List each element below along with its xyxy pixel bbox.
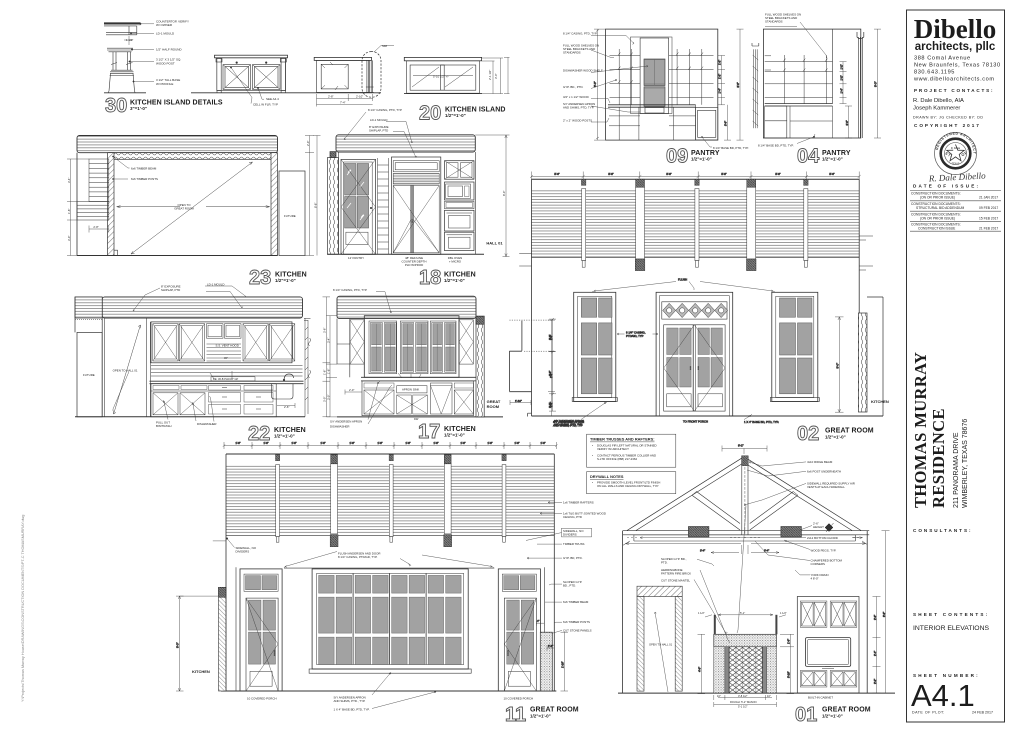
svg-text:TIMBER TRUSSES AND RAFTERS:: TIMBER TRUSSES AND RAFTERS: xyxy=(590,437,654,442)
svg-text:8 1/4" BASE BD, PTD, TYP.: 8 1/4" BASE BD, PTD, TYP. xyxy=(758,144,794,148)
svg-text:DIVIDERS: DIVIDERS xyxy=(236,550,250,554)
svg-text:2'-8": 2'-8" xyxy=(328,95,334,99)
svg-text:23: 23 xyxy=(249,267,271,289)
svg-text:8'-0": 8'-0" xyxy=(502,191,506,196)
svg-text:STRUCTURAL BID ADDENDUM: STRUCTURAL BID ADDENDUM xyxy=(916,206,964,210)
svg-text:REF: REF xyxy=(412,218,414,223)
svg-text:architects, pllc: architects, pllc xyxy=(915,41,996,53)
svg-text:DRYWALL NOTES: DRYWALL NOTES xyxy=(590,474,624,479)
svg-text:8 1/4" CASING, PTD/GD, TYP.: 8 1/4" CASING, PTD/GD, TYP. xyxy=(338,555,378,559)
svg-text:2'-0": 2'-0" xyxy=(349,388,354,392)
svg-text:1'-0": 1'-0" xyxy=(787,639,791,644)
svg-text:10 COVERED PORCH: 10 COVERED PORCH xyxy=(247,697,277,701)
svg-text:1'-8": 1'-8" xyxy=(292,442,297,445)
svg-text:1'-2": 1'-2" xyxy=(718,74,722,79)
svg-text:21 JAN 2017: 21 JAN 2017 xyxy=(979,196,998,200)
svg-text:PATTERN FIRE BRICK: PATTERN FIRE BRICK xyxy=(661,571,691,575)
svg-text:W/ OWNER: W/ OWNER xyxy=(156,23,173,27)
svg-text:3'-4": 3'-4" xyxy=(700,549,705,553)
svg-text:S.S. VENT HOOD: S.S. VENT HOOD xyxy=(216,344,239,348)
svg-text:CORNERS: CORNERS xyxy=(811,562,826,566)
svg-text:3'-0": 3'-0" xyxy=(326,395,330,400)
svg-text:8'-0": 8'-0" xyxy=(874,81,878,87)
svg-text:OPEN TO HALL 01: OPEN TO HALL 01 xyxy=(649,642,673,646)
svg-text:TIMBER TRUSS: TIMBER TRUSS xyxy=(563,542,585,546)
svg-text:5'-6": 5'-6" xyxy=(829,172,834,176)
svg-text:3'-8 1/2": 3'-8 1/2" xyxy=(738,694,748,698)
svg-text:3'-0": 3'-0" xyxy=(494,73,498,79)
svg-text:CELL W FLR, TYP: CELL W FLR, TYP xyxy=(253,103,278,107)
svg-text:8 1/4" CASING, PTD, TYP: 8 1/4" CASING, PTD, TYP xyxy=(368,108,402,112)
svg-text:3'-0": 3'-0" xyxy=(845,120,849,125)
svg-text:LD-1 MOULD: LD-1 MOULD xyxy=(370,118,388,122)
svg-text:DISHWASHER: DISHWASHER xyxy=(197,422,217,426)
svg-text:1 X 4" BASE BD, PTD, TYP.: 1 X 4" BASE BD, PTD, TYP. xyxy=(744,420,779,424)
svg-text:1'-8": 1'-8" xyxy=(378,442,383,445)
svg-text:GREAT ROOM: GREAT ROOM xyxy=(530,707,579,714)
svg-text:RESIDENCE: RESIDENCE xyxy=(929,408,948,508)
svg-text:R. Dale Dibello, AIA: R. Dale Dibello, AIA xyxy=(913,98,964,104)
svg-text:STANDARDS: STANDARDS xyxy=(765,20,783,24)
svg-text:11: 11 xyxy=(505,704,526,726)
svg-text:830.643.1195: 830.643.1195 xyxy=(914,70,955,76)
svg-text:GREAT ROOM: GREAT ROOM xyxy=(825,428,874,435)
svg-text:1'-4": 1'-4" xyxy=(839,88,843,93)
svg-text:4'-0": 4'-0" xyxy=(698,667,702,672)
svg-text:4x10 RIDGE BEAM: 4x10 RIDGE BEAM xyxy=(807,460,833,464)
svg-text:3'-10": 3'-10" xyxy=(787,671,791,678)
svg-text:BD., PTD.: BD., PTD. xyxy=(563,584,576,588)
svg-text:KITCHEN: KITCHEN xyxy=(871,399,889,404)
svg-text:1'-8": 1'-8" xyxy=(236,442,241,445)
svg-text:KITCHEN: KITCHEN xyxy=(192,669,210,674)
svg-text:RE: 36-B PLD/32" GP: RE: 36-B PLD/32" GP xyxy=(213,377,239,381)
svg-text:CONSULTANTS:: CONSULTANTS: xyxy=(913,528,973,533)
svg-text:1'-6": 1'-6" xyxy=(67,209,71,214)
svg-text:STANDARDS: STANDARDS xyxy=(563,51,581,55)
svg-text:3"=1'-0": 3"=1'-0" xyxy=(130,106,147,111)
svg-text:DISHWASHER WOOD SHELF: DISHWASHER WOOD SHELF xyxy=(563,69,603,73)
svg-text:DATE OF PLOT:: DATE OF PLOT: xyxy=(912,711,945,715)
svg-text:8'-0": 8'-0" xyxy=(176,642,180,648)
svg-text:PROJECT CONTACTS:: PROJECT CONTACTS: xyxy=(914,88,994,93)
svg-text:1 1/2": 1 1/2" xyxy=(780,611,787,615)
svg-text:2" x 2" WOOD POSTS: 2" x 2" WOOD POSTS xyxy=(563,119,592,123)
svg-text:+ MICRO: + MICRO xyxy=(449,259,462,263)
svg-text:30: 30 xyxy=(105,95,127,117)
svg-text:5'-8": 5'-8" xyxy=(666,172,671,176)
svg-text:1x6 TIMBER RAFTERS: 1x6 TIMBER RAFTERS xyxy=(563,500,594,504)
svg-text:1 1/2": 1 1/2" xyxy=(126,38,133,42)
svg-text:2'-8": 2'-8" xyxy=(93,225,98,229)
svg-text:FUTURE: FUTURE xyxy=(284,214,296,218)
svg-text:8'-0": 8'-0" xyxy=(882,612,886,617)
svg-text:10": 10" xyxy=(717,694,721,698)
svg-text:GREAT ROOM: GREAT ROOM xyxy=(822,707,871,714)
svg-text:09: 09 xyxy=(666,146,688,168)
svg-text:Joseph Kammerer: Joseph Kammerer xyxy=(913,106,960,112)
svg-text:1'-8": 1'-8" xyxy=(406,442,411,445)
svg-text:1/2"=1'-0": 1/2"=1'-0" xyxy=(275,278,296,283)
svg-text:1'-4": 1'-4" xyxy=(718,88,722,93)
svg-text:New Braunfels, Texas 78130: New Braunfels, Texas 78130 xyxy=(914,63,1001,69)
svg-text:6x6 TIMBER BEAM: 6x6 TIMBER BEAM xyxy=(563,600,589,604)
svg-text:10": 10" xyxy=(767,694,771,698)
svg-text:HEIGHT: HEIGHT xyxy=(813,525,824,529)
svg-text:WIMBERLEY, TEXAS 78676: WIMBERLEY, TEXAS 78676 xyxy=(962,419,969,508)
svg-text:2'-4": 2'-4" xyxy=(873,651,877,656)
svg-text:Y:\Projects\Thomas Murray Hou: Y:\Projects\Thomas Murray House\DRAWINGS… xyxy=(21,515,25,702)
svg-text:TO FRONT PORCH: TO FRONT PORCH xyxy=(683,420,708,424)
svg-text:18: 18 xyxy=(419,267,441,289)
svg-text:1'-2": 1'-2" xyxy=(839,64,843,69)
svg-text:INTERIOR ELEVATIONS: INTERIOR ELEVATIONS xyxy=(913,625,990,632)
svg-text:AND SHIMS, PTD, TYP: AND SHIMS, PTD, TYP xyxy=(553,424,583,428)
svg-text:1/2"=1'-0": 1/2"=1'-0" xyxy=(825,435,846,440)
svg-text:09 FEB 2017: 09 FEB 2017 xyxy=(979,206,998,210)
svg-text:3/4" x 1 1/2" WOOD: 3/4" x 1 1/2" WOOD xyxy=(563,95,589,99)
svg-text:8'-6": 8'-6" xyxy=(313,203,317,208)
svg-text:•: • xyxy=(592,481,593,485)
svg-text:5'-1 1/2": 5'-1 1/2" xyxy=(738,705,748,709)
svg-text:1'-2": 1'-2" xyxy=(839,75,843,80)
svg-text:20: 20 xyxy=(419,103,441,125)
svg-text:CUT STONE MANTEL: CUT STONE MANTEL xyxy=(661,578,691,582)
svg-text:2'-1 1/2": 2'-1 1/2" xyxy=(488,70,492,80)
svg-text:388 Comal Avenue: 388 Comal Avenue xyxy=(914,56,971,62)
svg-text:LD-1 MOULD: LD-1 MOULD xyxy=(207,282,225,286)
svg-text:SHIPLAP, PTD: SHIPLAP, PTD xyxy=(369,128,388,132)
svg-text:3'-6": 3'-6" xyxy=(323,328,327,333)
svg-text:10 COVERED PORCH: 10 COVERED PORCH xyxy=(504,697,534,701)
svg-text:1/2"=1'-0": 1/2"=1'-0" xyxy=(822,714,843,719)
svg-text:2'-10": 2'-10" xyxy=(356,95,363,99)
svg-text:GYP. BD, PTD.: GYP. BD, PTD. xyxy=(563,556,583,560)
svg-text:2'-2": 2'-2" xyxy=(873,679,877,684)
svg-text:R. DALE: R. DALE xyxy=(951,147,961,150)
svg-text:4": 4" xyxy=(537,619,539,623)
svg-text:1/2"=1'-0": 1/2"=1'-0" xyxy=(444,433,465,438)
svg-text:TEXAS: TEXAS xyxy=(952,163,960,166)
svg-text:LD-1 MOULD: LD-1 MOULD xyxy=(156,32,175,36)
svg-text:1/2"=1'-0": 1/2"=1'-0" xyxy=(691,157,712,162)
svg-text:6x6 TIMBER POSTS: 6x6 TIMBER POSTS xyxy=(131,177,158,181)
svg-text:THOMAS MURRAY: THOMAS MURRAY xyxy=(911,352,930,508)
svg-text:AND SHIMS, PTD., TYP.: AND SHIMS, PTD., TYP. xyxy=(334,699,366,703)
svg-text:8 1/4" CASING, PTD, TYP: 8 1/4" CASING, PTD, TYP xyxy=(333,288,367,292)
svg-text:1/2"=1'-0": 1/2"=1'-0" xyxy=(530,714,551,719)
svg-text:5'-8": 5'-8" xyxy=(608,172,613,176)
svg-text:5'-1": 5'-1" xyxy=(740,611,745,615)
svg-text:SHEET CONTENTS:: SHEET CONTENTS: xyxy=(913,612,989,617)
svg-text:1'-8": 1'-8" xyxy=(434,442,439,445)
svg-text:PTD/GD, TYP: PTD/GD, TYP xyxy=(626,334,644,338)
svg-text:6x6 POST UNDERNEATH: 6x6 POST UNDERNEATH xyxy=(807,469,841,473)
svg-text:6x6 TIMBER BEAM: 6x6 TIMBER BEAM xyxy=(131,166,157,170)
svg-text:•: • xyxy=(592,454,593,458)
svg-text:8'-2": 8'-2" xyxy=(738,444,744,448)
svg-text:6x6 TIMBER POSTS: 6x6 TIMBER POSTS xyxy=(563,620,590,624)
svg-text:1/2"=1'-0": 1/2"=1'-0" xyxy=(444,278,465,283)
svg-text:S-LTD OFFICE (888) 217-2362: S-LTD OFFICE (888) 217-2362 xyxy=(597,457,638,461)
svg-text:APRON SINK: APRON SINK xyxy=(402,388,419,392)
svg-text:211 PANORAMA DRIVE: 211 PANORAMA DRIVE xyxy=(953,432,960,508)
svg-text:•: • xyxy=(592,444,593,448)
svg-text:WOOD PEGS, TYP.: WOOD PEGS, TYP. xyxy=(811,549,837,553)
svg-text:www.dibelloarchitects.com: www.dibelloarchitects.com xyxy=(913,77,995,83)
svg-text:3'-0": 3'-0" xyxy=(724,121,728,126)
svg-text:1'-8": 1'-8" xyxy=(321,442,326,445)
svg-text:GYP. BD., PTD.: GYP. BD., PTD. xyxy=(563,85,584,89)
svg-text:04: 04 xyxy=(797,146,820,168)
svg-text:1'-6": 1'-6" xyxy=(323,370,327,375)
svg-text:S/Y ANDERSEN APRON: S/Y ANDERSEN APRON xyxy=(330,419,362,423)
svg-text:17: 17 xyxy=(418,421,440,443)
svg-text:OPEN TO HALL 01: OPEN TO HALL 01 xyxy=(113,369,138,373)
svg-text:1'-8": 1'-8" xyxy=(461,442,466,445)
svg-text:COPYRIGHT 2017: COPYRIGHT 2017 xyxy=(914,123,981,128)
svg-text:1/2" HALF ROUND: 1/2" HALF ROUND xyxy=(156,48,182,52)
svg-text:DIVIDERS: DIVIDERS xyxy=(563,532,577,536)
svg-text:1'-8": 1'-8" xyxy=(488,442,493,445)
svg-text:7'-4": 7'-4" xyxy=(340,101,346,105)
svg-text:VENTS AT EACH SIDEWALL: VENTS AT EACH SIDEWALL xyxy=(807,485,845,489)
svg-text:W/ PROFILE: W/ PROFILE xyxy=(156,82,173,86)
svg-text:3'-4": 3'-4" xyxy=(326,338,330,343)
svg-text:(ON OR PRIOR ISSUE): (ON OR PRIOR ISSUE) xyxy=(920,216,955,220)
svg-text:1 X 4" BASE BD, PTD, TYP.: 1 X 4" BASE BD, PTD, TYP. xyxy=(334,708,370,712)
svg-text:AND SHIMS, PTD, TYP.: AND SHIMS, PTD, TYP. xyxy=(563,105,594,109)
svg-text:FLUSH: FLUSH xyxy=(678,278,687,282)
svg-text:1/2"=1'-0": 1/2"=1'-0" xyxy=(822,157,843,162)
svg-text:2'-8": 2'-8" xyxy=(549,335,553,340)
svg-text:SIM: SIM xyxy=(382,44,388,48)
svg-text:BUILT-IN CABINET: BUILT-IN CABINET xyxy=(808,696,833,700)
svg-text:1'-6": 1'-6" xyxy=(326,369,330,374)
svg-text:36": 36" xyxy=(224,356,228,360)
svg-text:24 FEB 2017: 24 FEB 2017 xyxy=(972,711,993,715)
svg-text:VERIFY W/ ARCHITECT: VERIFY W/ ARCHITECT xyxy=(597,447,629,451)
svg-text:12' PANTRY: 12' PANTRY xyxy=(348,256,364,260)
svg-text:3'-0": 3'-0" xyxy=(323,397,327,402)
svg-text:1'-8": 1'-8" xyxy=(515,442,520,445)
svg-text:SEE A4.4: SEE A4.4 xyxy=(266,97,279,101)
svg-text:GREATROOM: GREATROOM xyxy=(487,399,501,409)
svg-text:FUTURE: FUTURE xyxy=(83,373,95,377)
svg-text:1'-8": 1'-8" xyxy=(264,442,269,445)
svg-text:5'-8": 5'-8" xyxy=(721,172,726,176)
svg-text:8'-0": 8'-0" xyxy=(593,81,597,87)
svg-text:15 FEB 2017: 15 FEB 2017 xyxy=(979,216,998,220)
svg-text:8'-0": 8'-0" xyxy=(836,363,840,369)
svg-text:2x12 BOTTOM CHORD: 2x12 BOTTOM CHORD xyxy=(807,536,838,540)
svg-text:DATE OF ISSUE:: DATE OF ISSUE: xyxy=(913,184,980,189)
svg-text:CEILING, PTD: CEILING, PTD xyxy=(563,515,582,519)
svg-text:PTD.: PTD. xyxy=(661,561,668,565)
svg-text:1'-8": 1'-8" xyxy=(541,442,546,445)
svg-text:DRAWN BY: JG CHECKED B: DRAWN BY: JG CHECKED BY: DD xyxy=(913,116,983,120)
svg-text:HALL 01: HALL 01 xyxy=(486,241,503,246)
svg-text:3'-6": 3'-6" xyxy=(549,373,553,378)
svg-text:1'-2": 1'-2" xyxy=(718,60,722,65)
svg-text:CONSTRUCTION ISSUE: CONSTRUCTION ISSUE xyxy=(918,227,956,231)
svg-text:Dibello: Dibello xyxy=(914,14,997,44)
svg-text:3'-4": 3'-4" xyxy=(764,549,769,553)
svg-text:ON ALL WALLS AND CEILING DRYWA: ON ALL WALLS AND CEILING DRYWALL, TYP xyxy=(597,484,658,488)
svg-text:21 FEB 2017: 21 FEB 2017 xyxy=(979,227,998,231)
svg-text:1/2"=1'-0": 1/2"=1'-0" xyxy=(274,434,295,439)
svg-text:5'-6": 5'-6" xyxy=(554,172,559,176)
svg-text:BIN/TRASH: BIN/TRASH xyxy=(156,424,171,428)
svg-text:4 8'-0": 4 8'-0" xyxy=(811,576,819,580)
svg-text:A4.1: A4.1 xyxy=(911,678,975,713)
svg-text:ROUGH: 5'-2" MASON: ROUGH: 5'-2" MASON xyxy=(730,700,757,704)
svg-text:2'-2": 2'-2" xyxy=(549,402,553,407)
svg-text:2'-0": 2'-0" xyxy=(306,141,310,146)
svg-text:1'-10": 1'-10" xyxy=(561,661,565,668)
svg-text:CUT STONE PANELS: CUT STONE PANELS xyxy=(563,628,592,632)
svg-text:2'-6": 2'-6" xyxy=(873,615,877,620)
svg-text:3'-4": 3'-4" xyxy=(67,178,71,183)
svg-text:DISHWASHER: DISHWASHER xyxy=(330,425,350,429)
svg-text:3'-0": 3'-0" xyxy=(67,236,71,241)
svg-text:1 1/2": 1 1/2" xyxy=(698,611,705,615)
svg-text:1'-6": 1'-6" xyxy=(548,644,553,648)
svg-text:02: 02 xyxy=(797,423,819,445)
svg-text:GREAT ROOM: GREAT ROOM xyxy=(174,206,194,210)
svg-text:(ON OR PRIOR ISSUE): (ON OR PRIOR ISSUE) xyxy=(920,196,955,200)
svg-text:5'-8": 5'-8" xyxy=(775,172,780,176)
svg-text:8'-0": 8'-0" xyxy=(736,82,740,87)
svg-text:8 1/4" CASING, PTD, TYP.: 8 1/4" CASING, PTD, TYP. xyxy=(563,32,598,36)
svg-text:WOOD POST: WOOD POST xyxy=(156,62,175,66)
svg-text:01: 01 xyxy=(795,704,817,726)
svg-text:1'-10": 1'-10" xyxy=(515,399,522,403)
svg-text:5'-10 1/2" +/-: 5'-10 1/2" +/- xyxy=(433,74,449,78)
svg-text:1/2"=1'-0": 1/2"=1'-0" xyxy=(445,113,466,118)
svg-text:2'-6": 2'-6" xyxy=(284,405,289,409)
svg-text:SHIPLAP, PTD: SHIPLAP, PTD xyxy=(161,288,180,292)
svg-text:1'-8": 1'-8" xyxy=(350,442,355,445)
